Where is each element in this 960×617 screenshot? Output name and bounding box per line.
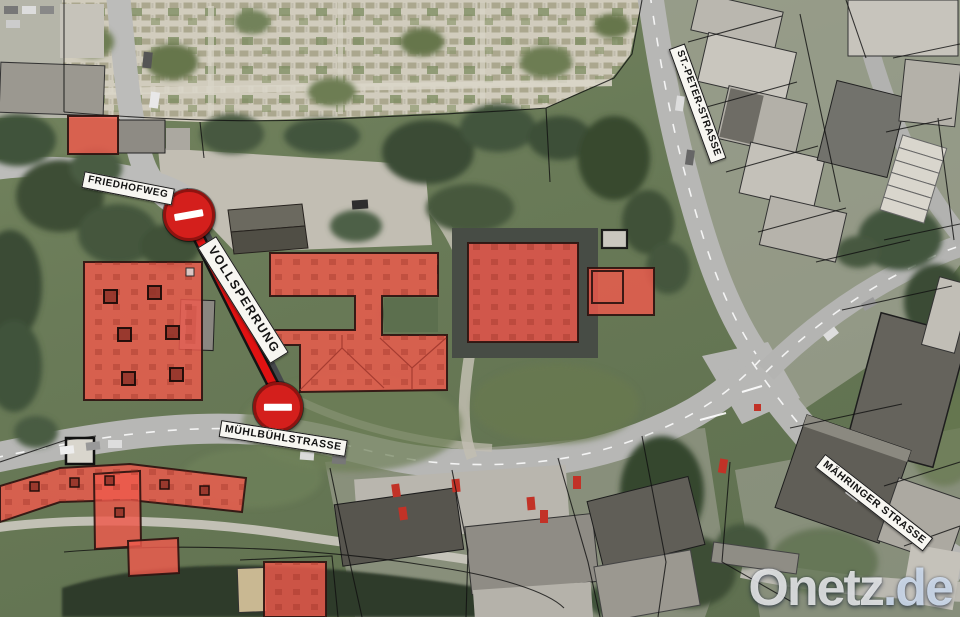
- no-entry-bar: [174, 209, 204, 221]
- building-annex-red: [588, 268, 654, 315]
- building-cemetery-red: [68, 116, 118, 154]
- onetz-watermark: Onetz.de: [748, 560, 952, 617]
- no-entry-sign-south: [253, 382, 303, 432]
- building-outlined-small: [602, 230, 627, 248]
- no-entry-bar: [264, 404, 292, 411]
- aerial-road-closure-map: FRIEDHOFWEG VOLLSPERRUNG MÜHLBÜHLSTRASSE…: [0, 0, 960, 617]
- watermark-brand: Onetz: [748, 559, 882, 617]
- courtyard: [384, 298, 438, 332]
- map-canvas: [0, 0, 960, 617]
- watermark-tld: .de: [883, 559, 952, 617]
